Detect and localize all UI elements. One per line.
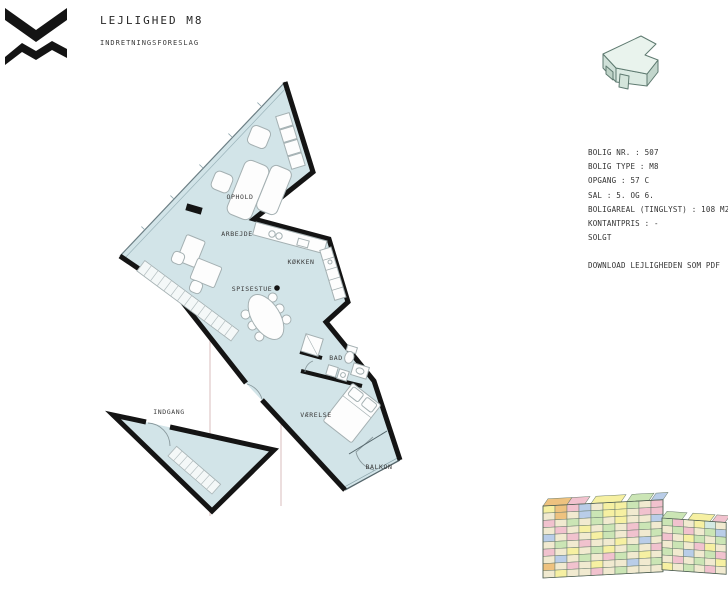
apartment-cell[interactable] (694, 550, 705, 558)
apartment-cell[interactable] (591, 568, 603, 576)
apartment-cell[interactable] (543, 520, 555, 528)
apartment-cell[interactable] (543, 549, 555, 557)
apartment-cell[interactable] (555, 541, 567, 549)
download-pdf-link[interactable]: DOWNLOAD LEJLIGHEDEN SOM PDF (588, 261, 726, 270)
info-line: BOLIG TYPE : M8 (588, 160, 726, 174)
room-label-arbejde: ARBEJDE (221, 230, 253, 238)
apartment-cell[interactable] (615, 509, 627, 517)
apartment-cell[interactable] (567, 540, 579, 548)
apartment-cell[interactable] (603, 545, 615, 553)
apartment-cell[interactable] (683, 527, 694, 535)
apartment-cell[interactable] (591, 524, 603, 532)
apartment-cell[interactable] (651, 521, 663, 529)
apartment-cell[interactable] (615, 566, 627, 574)
apartment-cell[interactable] (591, 553, 603, 561)
room-label-ophold: OPHOLD (226, 193, 253, 201)
apartment-cell[interactable] (567, 519, 579, 527)
apartment-cell[interactable] (639, 508, 651, 516)
apartment-cell[interactable] (651, 536, 663, 544)
apartment-cell[interactable] (567, 562, 579, 570)
apartment-cell[interactable] (683, 542, 694, 550)
apartment-cell[interactable] (627, 559, 639, 567)
room-label-bad: BAD (329, 354, 343, 362)
apartment-cell[interactable] (591, 560, 603, 568)
apartment-cell[interactable] (603, 567, 615, 575)
apartment-cell[interactable] (579, 547, 591, 555)
apartment-cell[interactable] (615, 502, 627, 510)
page: LEJLIGHED M8 INDRETNINGSFORESLAG (0, 0, 728, 589)
apartment-cell[interactable] (543, 556, 555, 564)
apartment-cell[interactable] (673, 548, 684, 556)
info-line: BOLIGAREAL (TINGLYST) : 108 M2 (588, 203, 726, 217)
apartment-cell[interactable] (639, 544, 651, 552)
apartment-cell[interactable] (683, 564, 694, 572)
apartment-cell[interactable] (627, 523, 639, 531)
apartment-cell[interactable] (694, 565, 705, 573)
apartment-cell[interactable] (591, 517, 603, 525)
apartment-cell[interactable] (567, 569, 579, 577)
apartment-cell[interactable] (627, 566, 639, 574)
apartment-cell[interactable] (579, 503, 591, 511)
info-line: SOLGT (588, 231, 726, 245)
apartment-cell[interactable] (543, 527, 555, 535)
apartment-cell[interactable] (683, 549, 694, 557)
apartment-cell[interactable] (615, 530, 627, 538)
apartment-cell[interactable] (603, 502, 615, 510)
apartment-cell[interactable] (603, 538, 615, 546)
room-label-værelse: VÆRELSE (300, 411, 332, 419)
info-line: KONTANTPRIS : - (588, 217, 726, 231)
apartment-cell[interactable] (694, 528, 705, 536)
room-label-spisestue: SPISESTUE (232, 285, 273, 293)
apartment-cell[interactable] (651, 565, 663, 573)
dryer (337, 369, 349, 381)
apartment-cell[interactable] (543, 563, 555, 571)
apartment-cell[interactable] (627, 551, 639, 559)
apartment-cell[interactable] (555, 562, 567, 570)
info-line: OPGANG : 57 C (588, 174, 726, 188)
apartment-cell[interactable] (591, 539, 603, 547)
apartment-cell[interactable] (603, 524, 615, 532)
apartment-cell[interactable] (673, 541, 684, 549)
apartment-cell[interactable] (639, 515, 651, 523)
apartment-cell[interactable] (694, 535, 705, 543)
apartment-cell[interactable] (716, 522, 727, 530)
apartment-cell[interactable] (555, 570, 567, 578)
apartment-cell[interactable] (579, 561, 591, 569)
apartment-cell[interactable] (627, 530, 639, 538)
apartment-cell[interactable] (555, 519, 567, 527)
apartment-cell[interactable] (567, 533, 579, 541)
apartment-cell[interactable] (579, 532, 591, 540)
apartment-cell[interactable] (651, 514, 663, 522)
apartment-cell[interactable] (555, 505, 567, 513)
apartment-cell[interactable] (591, 510, 603, 518)
apartment-cell[interactable] (705, 536, 716, 544)
apartment-cell[interactable] (716, 544, 727, 552)
apartment-cell[interactable] (603, 531, 615, 539)
apartment-cell[interactable] (662, 518, 673, 526)
apartment-cell[interactable] (705, 543, 716, 551)
apartment-cell[interactable] (639, 529, 651, 537)
apartment-cell[interactable] (603, 509, 615, 517)
apartment-cell[interactable] (662, 540, 673, 548)
info-line: BOLIG NR. : 507 (588, 146, 726, 160)
apartment-cell[interactable] (716, 529, 727, 537)
apartment-cell[interactable] (603, 560, 615, 568)
apartment-cell[interactable] (627, 537, 639, 545)
apartment-cell[interactable] (705, 558, 716, 566)
apartment-cell[interactable] (673, 519, 684, 527)
apartment-cell[interactable] (683, 556, 694, 564)
room-label-balkon: BALKON (365, 463, 392, 471)
apartment-cell[interactable] (615, 552, 627, 560)
apartment-cell[interactable] (651, 543, 663, 551)
apartment-cell[interactable] (639, 536, 651, 544)
apartment-cell[interactable] (615, 545, 627, 553)
apartment-cell[interactable] (555, 555, 567, 563)
apartment-cell[interactable] (705, 528, 716, 536)
apartment-cell[interactable] (651, 500, 663, 508)
apartment-cell[interactable] (567, 526, 579, 534)
apartment-cell[interactable] (543, 505, 555, 513)
apartment-cell[interactable] (705, 551, 716, 559)
apartment-cell[interactable] (579, 539, 591, 547)
apartment-cell[interactable] (639, 522, 651, 530)
apartment-cell[interactable] (662, 548, 673, 556)
apartment-cell[interactable] (543, 534, 555, 542)
apartment-cell[interactable] (579, 518, 591, 526)
apartment-cell[interactable] (555, 512, 567, 520)
apartment-cell[interactable] (716, 559, 727, 567)
apartment-cell[interactable] (579, 511, 591, 519)
apartment-cell[interactable] (673, 534, 684, 542)
apartment-cell[interactable] (615, 523, 627, 531)
apartment-cell[interactable] (615, 559, 627, 567)
apartment-cell[interactable] (591, 546, 603, 554)
apartment-cell[interactable] (627, 544, 639, 552)
plan-marker-dot (274, 285, 280, 291)
apartment-cell[interactable] (555, 548, 567, 556)
apartment-cell[interactable] (639, 565, 651, 573)
info-lines: BOLIG NR. : 507BOLIG TYPE : M8OPGANG : 5… (588, 146, 726, 245)
apartment-cell[interactable] (603, 517, 615, 525)
apartment-cell[interactable] (651, 550, 663, 558)
apartment-cell[interactable] (591, 503, 603, 511)
apartment-cell[interactable] (543, 541, 555, 549)
apartment-cell[interactable] (694, 557, 705, 565)
apartment-cell[interactable] (627, 501, 639, 509)
apartment-cell[interactable] (567, 547, 579, 555)
apartment-cell[interactable] (555, 534, 567, 542)
apartment-cell[interactable] (683, 519, 694, 527)
apartment-cell[interactable] (673, 556, 684, 564)
apartment-cell[interactable] (579, 525, 591, 533)
apartment-cell[interactable] (694, 542, 705, 550)
icon-foot (619, 74, 629, 89)
apartment-cell[interactable] (567, 555, 579, 563)
room-label-indgang: INDGANG (153, 408, 185, 416)
apartment-cell[interactable] (705, 521, 716, 529)
apartment-cell[interactable] (639, 558, 651, 566)
apartment-cell[interactable] (615, 516, 627, 524)
apartment-cell[interactable] (662, 525, 673, 533)
apartment-cell[interactable] (662, 562, 673, 570)
apartment-cell[interactable] (567, 504, 579, 512)
apartment-cell[interactable] (615, 538, 627, 546)
apartment-cell[interactable] (567, 511, 579, 519)
apartment-cell[interactable] (705, 565, 716, 573)
apartment-cell[interactable] (673, 526, 684, 534)
apartment-cell[interactable] (683, 534, 694, 542)
room-label-køkken: KØKKEN (287, 258, 314, 266)
apartment-m8-3d-icon (596, 28, 664, 92)
info-line: SAL : 5. OG 6. (588, 189, 726, 203)
apartment-cell[interactable] (591, 532, 603, 540)
apartment-cell[interactable] (579, 568, 591, 576)
apartment-cell[interactable] (639, 551, 651, 559)
apartment-cell[interactable] (627, 515, 639, 523)
apartment-cell[interactable] (651, 507, 663, 515)
apartment-cell[interactable] (716, 566, 727, 574)
apartment-cell[interactable] (603, 553, 615, 561)
apartment-info: BOLIG NR. : 507BOLIG TYPE : M8OPGANG : 5… (588, 146, 726, 270)
apartment-cell[interactable] (694, 520, 705, 528)
apartment-cell[interactable] (639, 500, 651, 508)
apartment-cell[interactable] (543, 513, 555, 521)
apartment-cell[interactable] (627, 508, 639, 516)
apartment-cell[interactable] (651, 557, 663, 565)
apartment-cell[interactable] (651, 529, 663, 537)
apartment-cell[interactable] (555, 526, 567, 534)
apartment-cell[interactable] (673, 563, 684, 571)
apartment-cell[interactable] (662, 533, 673, 541)
apartment-cell[interactable] (543, 570, 555, 578)
apartment-cell[interactable] (579, 554, 591, 562)
apartment-cell[interactable] (662, 555, 673, 563)
vm-building-overview[interactable] (538, 492, 728, 587)
apartment-cell[interactable] (716, 537, 727, 545)
apartment-cell[interactable] (716, 551, 727, 559)
washer (326, 365, 338, 377)
